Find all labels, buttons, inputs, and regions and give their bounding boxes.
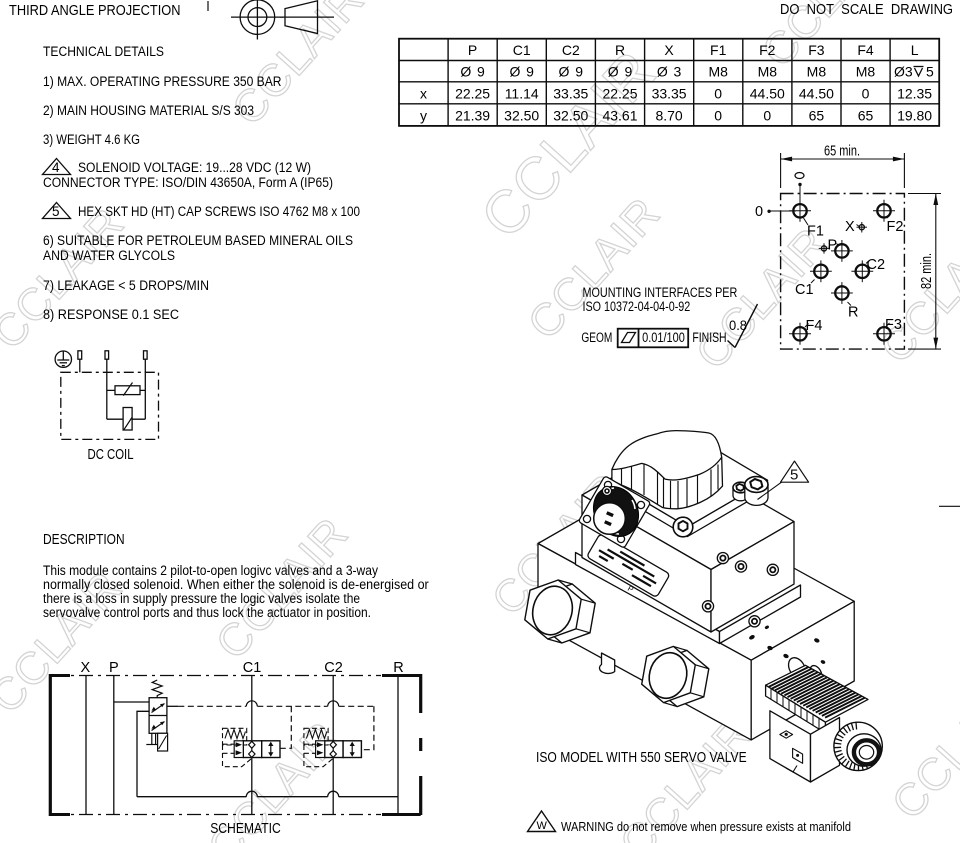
- svg-text:servovalve control ports and t: servovalve control ports and thus lock t…: [43, 605, 371, 620]
- svg-text:F2: F2: [759, 42, 776, 58]
- svg-text:32.50: 32.50: [553, 107, 588, 123]
- svg-text:THIRD ANGLE PROJECTION: THIRD ANGLE PROJECTION: [9, 2, 181, 19]
- svg-text:P: P: [828, 238, 838, 254]
- svg-text:82 min.: 82 min.: [919, 253, 935, 289]
- svg-text:65: 65: [809, 107, 825, 123]
- svg-text:GEOM: GEOM: [581, 330, 612, 345]
- svg-text:This module contains 2 pilot-t: This module contains 2 pilot-to-open log…: [43, 563, 378, 578]
- svg-text:W: W: [537, 820, 548, 832]
- svg-text:x: x: [420, 86, 427, 102]
- svg-text:F2: F2: [887, 219, 904, 235]
- svg-text:L: L: [911, 42, 919, 58]
- svg-text:DESCRIPTION: DESCRIPTION: [43, 531, 125, 548]
- svg-text:y: y: [420, 107, 427, 123]
- svg-text:C2: C2: [324, 660, 343, 676]
- svg-text:M8: M8: [708, 64, 728, 80]
- svg-text:there is a loss in supply pres: there is a loss in supply pressure the l…: [43, 591, 360, 606]
- svg-text:3) WEIGHT 4.6 KG: 3) WEIGHT 4.6 KG: [43, 132, 140, 147]
- svg-text:44.50: 44.50: [750, 86, 785, 102]
- svg-text:65 min.: 65 min.: [824, 144, 860, 160]
- svg-text:32.50: 32.50: [504, 107, 539, 123]
- svg-text:44.50: 44.50: [799, 86, 834, 102]
- svg-text:F3: F3: [808, 42, 825, 58]
- svg-text:Ø9: Ø9: [559, 64, 584, 80]
- svg-text:19.80: 19.80: [897, 107, 932, 123]
- svg-text:CONNECTOR TYPE: ISO/DIN 43650A: CONNECTOR TYPE: ISO/DIN 43650A, Form A (…: [43, 175, 333, 190]
- svg-text:43.61: 43.61: [602, 107, 637, 123]
- svg-text:65: 65: [858, 107, 874, 123]
- svg-text:R: R: [848, 305, 858, 321]
- svg-text:SOLENOID VOLTAGE: 19...28 VDC: SOLENOID VOLTAGE: 19...28 VDC (12 W): [78, 160, 311, 175]
- svg-text:HEX SKT HD (HT) CAP SCREWS ISO: HEX SKT HD (HT) CAP SCREWS ISO 4762 M8 x…: [78, 204, 360, 219]
- svg-text:R: R: [615, 42, 625, 58]
- svg-text:R: R: [393, 660, 403, 676]
- svg-text:C2: C2: [867, 257, 886, 273]
- svg-text:22.25: 22.25: [602, 86, 637, 102]
- svg-text:5: 5: [52, 204, 60, 219]
- svg-text:8) RESPONSE 0.1 SEC: 8) RESPONSE 0.1 SEC: [43, 307, 179, 322]
- svg-text:33.35: 33.35: [652, 86, 687, 102]
- svg-text:CCLAIR: CCLAIR: [882, 667, 960, 828]
- svg-text:0: 0: [755, 204, 763, 220]
- svg-text:M8: M8: [807, 64, 827, 80]
- svg-text:7) LEAKAGE < 5 DROPS/MIN: 7) LEAKAGE < 5 DROPS/MIN: [43, 278, 209, 293]
- svg-text:8.70: 8.70: [655, 107, 682, 123]
- svg-text:X: X: [664, 42, 674, 58]
- svg-text:DC COIL: DC COIL: [88, 446, 134, 463]
- svg-text:Ø3: Ø3: [894, 64, 913, 80]
- svg-text:11.14: 11.14: [505, 86, 539, 102]
- svg-text:M8: M8: [856, 64, 876, 80]
- svg-text:F1: F1: [807, 224, 824, 240]
- svg-text:33.35: 33.35: [553, 86, 588, 102]
- svg-text:M8: M8: [758, 64, 778, 80]
- svg-text:22.25: 22.25: [455, 86, 490, 102]
- svg-text:C2: C2: [562, 42, 580, 58]
- svg-text:ISO 10372-04-04-0-92: ISO 10372-04-04-0-92: [583, 299, 691, 314]
- svg-text:SCHEMATIC: SCHEMATIC: [210, 821, 281, 837]
- svg-text:TECHNICAL DETAILS: TECHNICAL DETAILS: [43, 44, 164, 59]
- svg-text:ISO MODEL WITH 550 SERVO VALVE: ISO MODEL WITH 550 SERVO VALVE: [536, 750, 747, 766]
- svg-text:X: X: [80, 660, 90, 676]
- svg-text:0: 0: [714, 86, 722, 102]
- svg-text:Ø9: Ø9: [460, 64, 485, 80]
- svg-text:WARNING do not remove when pre: WARNING do not remove when pressure exis…: [561, 820, 851, 834]
- svg-text:MOUNTING INTERFACES PER: MOUNTING INTERFACES PER: [583, 285, 738, 300]
- svg-text:AND WATER GLYCOLS: AND WATER GLYCOLS: [43, 248, 175, 263]
- svg-text:21.39: 21.39: [455, 107, 490, 123]
- svg-text:F4: F4: [857, 42, 874, 58]
- svg-text:C1: C1: [243, 660, 262, 676]
- svg-text:5: 5: [790, 467, 798, 484]
- svg-text:12.35: 12.35: [897, 86, 932, 102]
- svg-text:P: P: [109, 660, 119, 676]
- svg-text:Ø3: Ø3: [657, 64, 682, 80]
- svg-text:P: P: [468, 42, 477, 58]
- svg-text:F1: F1: [710, 42, 727, 58]
- svg-text:Ø9: Ø9: [509, 64, 534, 80]
- svg-text:DO NOT SCALE DRAWING: DO NOT SCALE DRAWING: [780, 1, 953, 18]
- svg-text:4: 4: [52, 160, 60, 175]
- svg-text:C1: C1: [513, 42, 531, 58]
- svg-text:F4: F4: [806, 318, 823, 334]
- svg-text:0: 0: [862, 86, 870, 102]
- svg-text:5: 5: [926, 64, 934, 80]
- svg-text:normally closed solenoid. When: normally closed solenoid. When either th…: [43, 577, 429, 592]
- svg-text:X: X: [845, 219, 855, 235]
- svg-text:FINISH: FINISH: [692, 330, 726, 345]
- svg-text:1) MAX. OPERATING PRESSURE 350: 1) MAX. OPERATING PRESSURE 350 BAR: [43, 74, 282, 89]
- svg-text:0.8: 0.8: [729, 317, 747, 333]
- svg-text:0: 0: [714, 107, 722, 123]
- svg-text:0: 0: [763, 107, 771, 123]
- svg-text:C1: C1: [795, 282, 814, 298]
- svg-text:6) SUITABLE FOR PETROLEUM BASE: 6) SUITABLE FOR PETROLEUM BASED MINERAL …: [43, 233, 353, 248]
- svg-text:0.01/100: 0.01/100: [642, 330, 685, 345]
- svg-text:2) MAIN HOUSING MATERIAL S/S 3: 2) MAIN HOUSING MATERIAL S/S 303: [43, 103, 254, 118]
